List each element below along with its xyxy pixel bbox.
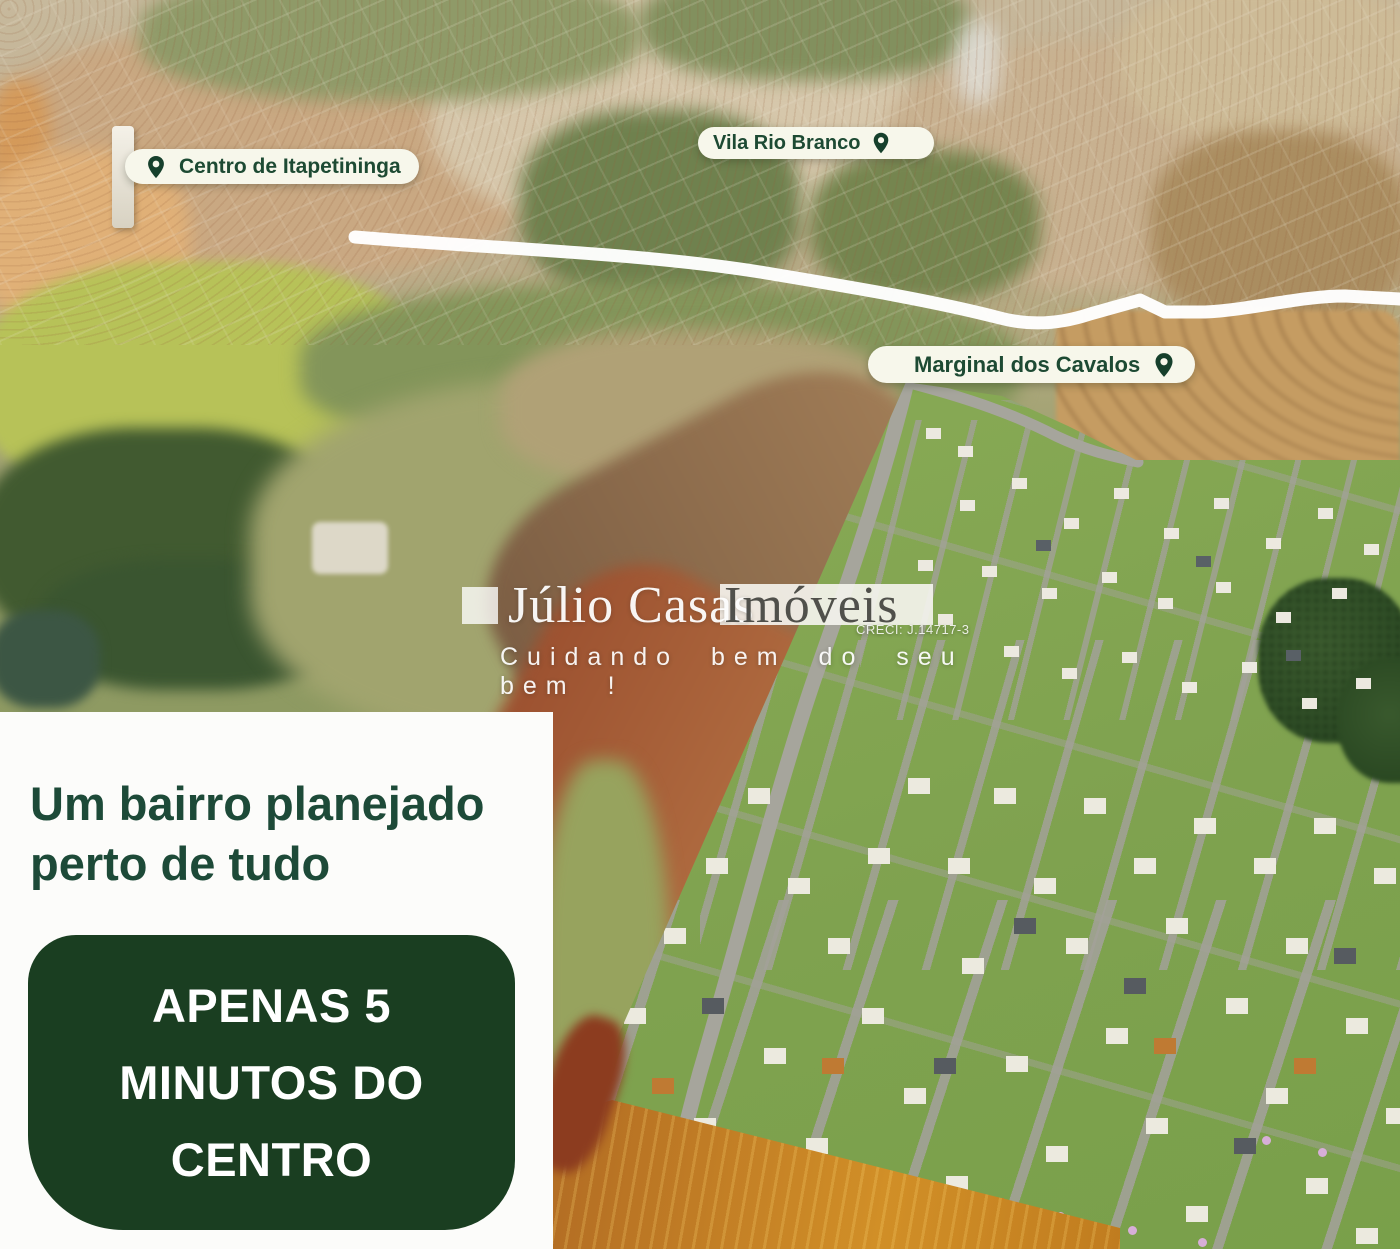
map-pin-marginal-dos-cavalos: Marginal dos Cavalos (868, 346, 1195, 383)
badge-line2: MINUTOS DO (119, 1044, 423, 1121)
info-panel: Um bairro planejado perto de tudo APENAS… (0, 712, 553, 1249)
brand-name: Júlio Casas (508, 576, 754, 635)
location-pin-icon (869, 131, 893, 155)
map-pin-centro: Centro de Itapetininga (125, 149, 419, 184)
brand-watermark: Júlio Casas Imóveis CRECI: J.14717-3 Cui… (462, 584, 1002, 684)
creci-registration: CRECI: J.14717-3 (856, 622, 970, 637)
farm-buildings (312, 522, 388, 574)
brand-logo-square (462, 587, 498, 624)
headline-line2: perto de tudo (30, 834, 484, 894)
badge-line3: CENTRO (171, 1121, 372, 1198)
headline: Um bairro planejado perto de tudo (30, 774, 484, 894)
map-pin-label: Centro de Itapetininga (179, 155, 401, 179)
pond (0, 610, 100, 708)
map-pin-label: Marginal dos Cavalos (914, 352, 1140, 378)
brand-tagline: Cuidando bem do seu bem ! (500, 643, 1002, 701)
map-pin-vila-rio-branco: Vila Rio Branco (698, 127, 934, 159)
real-estate-ad-banner: Centro de Itapetininga Vila Rio Branco M… (0, 0, 1400, 1249)
distance-badge: APENAS 5 MINUTOS DO CENTRO (28, 935, 515, 1230)
map-pin-label: Vila Rio Branco (713, 132, 860, 155)
location-pin-icon (143, 154, 169, 180)
headline-line1: Um bairro planejado (30, 774, 484, 834)
location-pin-icon (1150, 351, 1178, 379)
badge-line1: APENAS 5 (152, 967, 391, 1044)
